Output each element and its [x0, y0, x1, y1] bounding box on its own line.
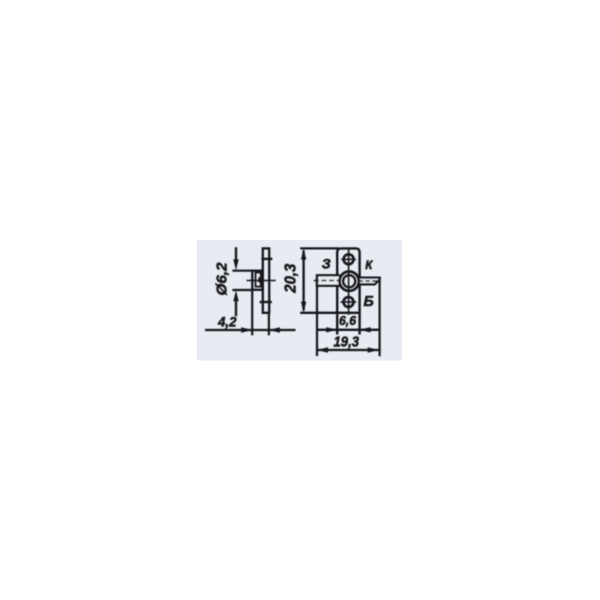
- svg-text:6,6: 6,6: [339, 313, 357, 328]
- svg-text:Ø6,2: Ø6,2: [214, 262, 231, 296]
- svg-text:4,2: 4,2: [217, 314, 237, 330]
- svg-text:20,3: 20,3: [283, 264, 300, 294]
- svg-text:К: К: [365, 260, 373, 272]
- svg-text:Б: Б: [364, 294, 374, 310]
- svg-text:З: З: [322, 255, 331, 271]
- svg-text:19,3: 19,3: [334, 335, 360, 351]
